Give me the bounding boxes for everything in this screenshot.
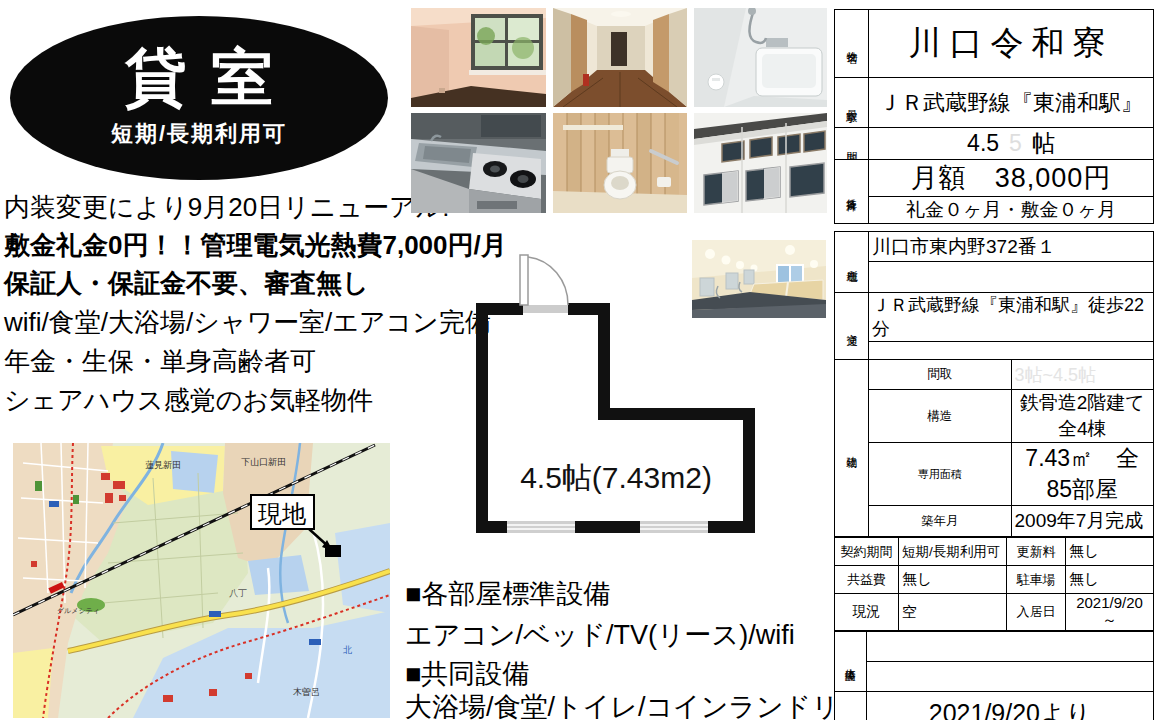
access-value: ＪＲ武蔵野線『東浦和駅』徒歩22分 <box>869 293 1154 342</box>
map-label-haccho: 八丁 <box>229 588 247 598</box>
structure-label: 構造 <box>869 390 1012 443</box>
built-date-value: 2009年7月完成 <box>1011 506 1154 537</box>
highlight-guarantor: 保証人・保証金不要、審査無し <box>4 269 369 298</box>
highlight-sharehouse: シェアハウス感覚のお気軽物件 <box>4 386 373 415</box>
remarks-value: 2021/9/20より リニューアルオープン <box>867 692 1154 720</box>
built-date-label: 築年月 <box>869 506 1012 537</box>
equipment-shared-header: ■共同設備 <box>405 656 529 692</box>
photo-toilet <box>553 113 687 213</box>
renewal-fee-label: 更新料 <box>1007 538 1066 566</box>
photo-kitchen <box>411 113 546 213</box>
highlight-fees: 敷金礼金0円！！管理電気光熱費7,000円/月 <box>4 231 507 260</box>
map-label-kizoro: 木曽呂 <box>293 687 320 697</box>
rent-terms-label: 賃貸条件 <box>835 160 869 224</box>
address-label: 所在地 <box>835 232 869 293</box>
nearest-station-label: 最寄駅 <box>835 78 869 128</box>
map-label-shimoyamaguchi: 下山口新田 <box>241 457 286 467</box>
layout-ghost-text: 5 <box>1009 130 1022 156</box>
common-fee-label: 共益費 <box>835 566 899 594</box>
building-layout-ghost: 3帖~4.5帖 <box>1011 360 1154 390</box>
remarks-label: 備考 <box>835 692 867 720</box>
floor-area-label: 専用面積 <box>869 443 1012 506</box>
floorplan-size-label: 4.5帖(7.43m2) <box>520 461 712 494</box>
key-money-deposit-value: 礼金０ヶ月・敷金０ヶ月 <box>869 197 1154 224</box>
common-fee-value: 無し <box>899 566 1007 594</box>
photo-room-interior <box>411 8 546 107</box>
rental-flyer: 貸室 短期/長期利用可 内装変更により9月20日リニューアル! 敷金礼金0円！！… <box>0 0 1169 720</box>
map-label-north: 北 <box>343 645 352 655</box>
map-label-hasumi: 蓮見新田 <box>145 460 181 470</box>
details-table: 所在地 川口市東内野372番１ 交通 ＪＲ武蔵野線『東浦和駅』徒歩22分 建物 … <box>834 231 1154 720</box>
floor-plan: 4.5帖(7.43m2) <box>470 248 762 543</box>
layout-label: 間取 <box>835 128 869 160</box>
badge-subtitle: 短期/長期利用可 <box>111 119 287 149</box>
contract-period-label: 契約期間 <box>835 538 899 566</box>
structure-value: 鉄骨造2階建て 全4棟 <box>1011 390 1154 443</box>
location-map: 蓮見新田 下山口新田 八丁 木曽呂 グルメシティ 北 現地 <box>13 443 390 718</box>
map-label-gourmet: グルメシティ <box>57 607 100 615</box>
photo-unit-bath <box>694 8 827 107</box>
highlight-eligible: 年金・生保・単身高齢者可 <box>4 347 316 376</box>
property-name-value: 川口令和寮 <box>869 10 1154 78</box>
access-label: 交通 <box>835 293 869 360</box>
equipment-room-items: エアコン/ベッド/TV(リース)/wifi <box>405 617 795 653</box>
layout-value: 4.55帖 <box>869 128 1154 160</box>
monthly-rent-value: 月額 38,000円 <box>869 160 1154 197</box>
site-label: 現地 <box>258 500 306 527</box>
door-symbol <box>520 255 568 305</box>
nearest-station-value: ＪＲ武蔵野線『東浦和駅』 <box>869 78 1154 128</box>
floor-area-value: 7.43㎡ 全85部屋 <box>1011 443 1154 506</box>
equipment-room-header: ■各部屋標準設備 <box>405 576 610 612</box>
parking-value: 無し <box>1066 566 1154 594</box>
highlight-amenities: wifi/食堂/大浴場/シャワー室/エアコン完備 <box>4 308 491 337</box>
unit-facilities-label: 本体設備 <box>835 632 867 692</box>
building-layout-label: 間取 <box>869 360 1012 390</box>
contract-period-value: 短期/長期利用可 <box>899 538 1007 566</box>
property-name-label: 物件名 <box>835 10 869 78</box>
site-marker <box>325 545 341 557</box>
access-extra-row <box>869 342 1154 360</box>
renewal-fee-value: 無し <box>1066 538 1154 566</box>
rental-badge: 貸室 短期/長期利用可 <box>10 16 388 180</box>
equipment-shared-items: 大浴場/食堂/トイレ/コインランドリー <box>405 689 866 720</box>
address-extra-row <box>869 262 1154 293</box>
photo-hallway <box>553 8 687 107</box>
unit-facilities-row2 <box>867 662 1154 692</box>
highlight-renewal: 内装変更により9月20日リニューアル! <box>4 193 449 222</box>
address-value: 川口市東内野372番１ <box>869 232 1154 262</box>
building-label: 建物 <box>835 360 869 537</box>
current-status-label: 現況 <box>835 594 899 631</box>
door-threshold <box>523 305 568 313</box>
parking-label: 駐車場 <box>1007 566 1066 594</box>
photo-building-exterior <box>694 113 827 213</box>
move-in-date-label: 入居日 <box>1007 594 1066 631</box>
move-in-date-value: 2021/9/20～ <box>1066 594 1154 631</box>
badge-title: 貸室 <box>101 47 297 109</box>
unit-facilities-row1 <box>867 632 1154 662</box>
current-status-value: 空 <box>899 594 1007 631</box>
summary-table: 物件名 川口令和寮 最寄駅 ＪＲ武蔵野線『東浦和駅』 間取 4.55帖 賃貸条件… <box>834 9 1154 224</box>
